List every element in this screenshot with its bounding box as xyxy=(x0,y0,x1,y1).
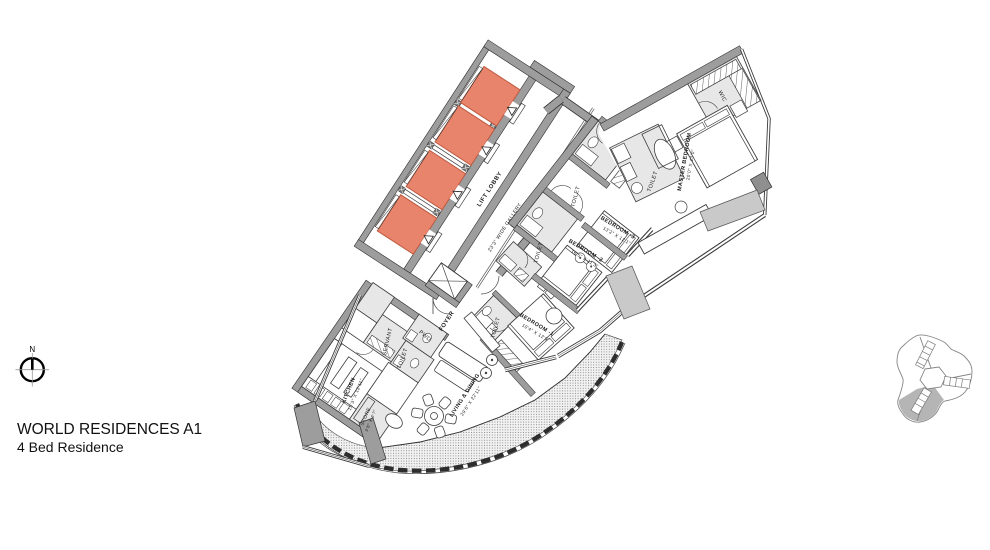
svg-text:WORLD RESIDENCES A1: WORLD RESIDENCES A1 xyxy=(17,421,202,438)
svg-text:N: N xyxy=(29,345,35,354)
svg-text:4 Bed Residence: 4 Bed Residence xyxy=(17,439,124,455)
